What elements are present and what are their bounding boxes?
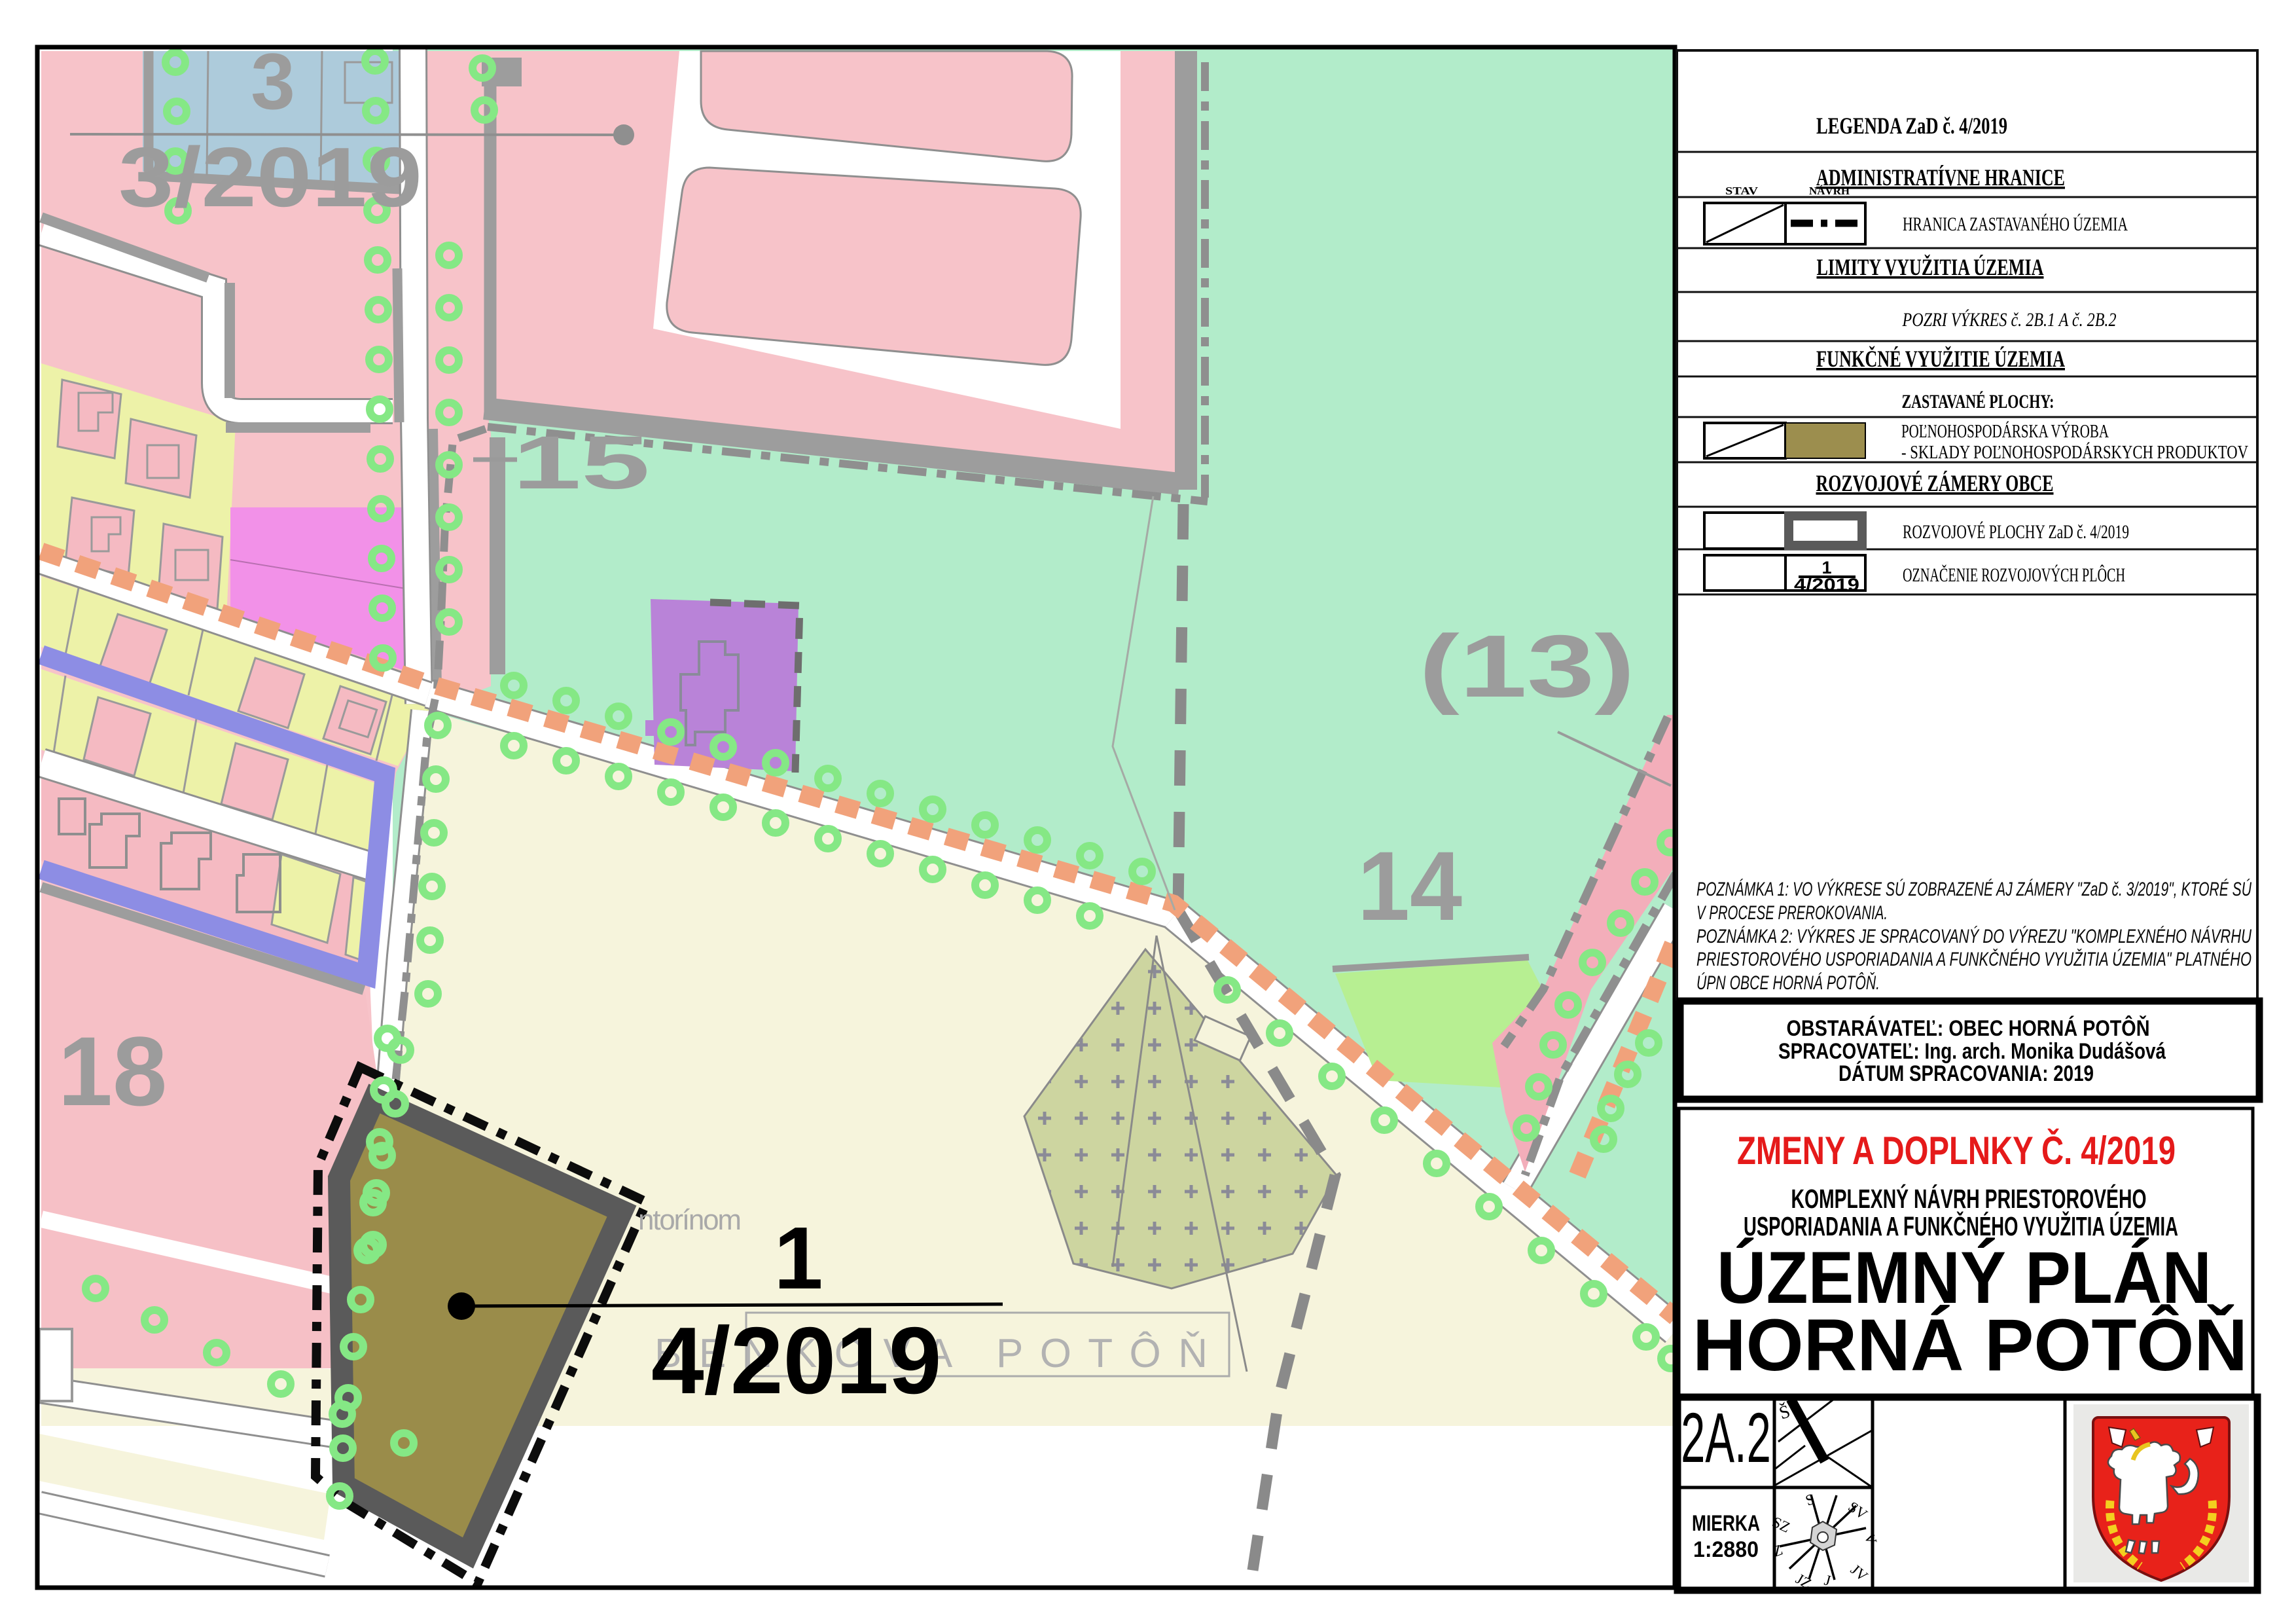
svg-text:14: 14 <box>1357 831 1462 941</box>
svg-text:STAV: STAV <box>1725 185 1759 197</box>
svg-text:NÁVRH: NÁVRH <box>1809 185 1850 197</box>
svg-text:ÚPN OBCE HORNÁ POTÔŇ.: ÚPN OBCE HORNÁ POTÔŇ. <box>1696 972 1880 994</box>
svg-text:OBSTARÁVATEĽ: OBEC HORNÁ POT: OBSTARÁVATEĽ: OBEC HORNÁ POTÔŇ <box>1787 1015 2150 1041</box>
svg-text:SPRACOVATEĽ: Ing. arch. Monika: SPRACOVATEĽ: Ing. arch. Monika Dudášová <box>1778 1039 2166 1064</box>
svg-text:ZASTAVANÉ PLOCHY:: ZASTAVANÉ PLOCHY: <box>1902 391 2054 412</box>
svg-text:FUNKČNÉ VYUŽITIE ÚZEMIA: FUNKČNÉ VYUŽITIE ÚZEMIA <box>1816 346 2065 372</box>
svg-text:KOMPLEXNÝ NÁVRH PRIESTOROVÉH: KOMPLEXNÝ NÁVRH PRIESTOROVÉHO <box>1791 1184 2147 1214</box>
svg-text:OZNAČENIE ROZVOJOVÝCH PLÔCH: OZNAČENIE ROZVOJOVÝCH PLÔCH <box>1903 564 2125 586</box>
svg-text:ROZVOJOVÉ PLOCHY ZaD č. 4/2019: ROZVOJOVÉ PLOCHY ZaD č. 4/2019 <box>1903 521 2129 543</box>
svg-text:ntorínom: ntorínom <box>638 1204 742 1236</box>
svg-text:DÁTUM SPRACOVANIA: 2019: DÁTUM SPRACOVANIA: 2019 <box>1839 1061 2094 1086</box>
svg-text:15: 15 <box>512 421 650 505</box>
svg-text:HORNÁ POTÔŇ: HORNÁ POTÔŇ <box>1693 1304 2248 1386</box>
svg-text:2A.2: 2A.2 <box>1681 1399 1771 1478</box>
svg-text:POZRI VÝKRES č. 2B.1 A č. 2B.2: POZRI VÝKRES č. 2B.1 A č. 2B.2 <box>1902 309 2117 331</box>
svg-text:ROZVOJOVÉ ZÁMERY OBCE: ROZVOJOVÉ ZÁMERY OBCE <box>1816 470 2054 496</box>
svg-text:LEGENDA ZaD č. 4/2019: LEGENDA ZaD č. 4/2019 <box>1816 113 2007 139</box>
svg-text:18: 18 <box>58 1016 168 1126</box>
svg-text:PRIESTOROVÉHO USPORIADANIA A F: PRIESTOROVÉHO USPORIADANIA A FUNKČNÉHO V… <box>1696 948 2251 970</box>
svg-text:POĽNOHOSPODÁRSKA VÝROBA: POĽNOHOSPODÁRSKA VÝROBA <box>1901 420 2109 442</box>
svg-text:4/2019: 4/2019 <box>651 1307 942 1413</box>
svg-text:1:2880: 1:2880 <box>1693 1537 1759 1562</box>
svg-text:LIMITY VYUŽITIA ÚZEMIA: LIMITY VYUŽITIA ÚZEMIA <box>1817 254 2044 280</box>
svg-text:1: 1 <box>774 1209 823 1307</box>
svg-text:V PROCESE PREROKOVANIA.: V PROCESE PREROKOVANIA. <box>1696 902 1888 924</box>
svg-text:MIERKA: MIERKA <box>1692 1511 1760 1536</box>
svg-text:- SKLADY POĽNOHOSPODÁRSKYCH PR: - SKLADY POĽNOHOSPODÁRSKYCH PRODUKTOV <box>1901 441 2248 463</box>
svg-text:POZNÁMKA 1: VO VÝKRESE SÚ ZOBR: POZNÁMKA 1: VO VÝKRESE SÚ ZOBRAZENÉ AJ Z… <box>1696 879 2251 900</box>
svg-text:HRANICA ZASTAVANÉHO ÚZEMIA: HRANICA ZASTAVANÉHO ÚZEMIA <box>1903 213 2128 235</box>
svg-text:3/2019: 3/2019 <box>118 130 422 225</box>
svg-text:ZMENY A DOPLNKY Č. 4/2019: ZMENY A DOPLNKY Č. 4/2019 <box>1737 1129 2176 1173</box>
svg-text:ADMINISTRATÍVNE HRANICE: ADMINISTRATÍVNE HRANICE <box>1816 164 2065 191</box>
svg-text:(13): (13) <box>1419 617 1635 716</box>
svg-text:POZNÁMKA 2: VÝKRES JE SPRACOV: POZNÁMKA 2: VÝKRES JE SPRACOVANÝ DO VÝRE… <box>1696 926 2251 947</box>
svg-text:3: 3 <box>251 37 295 126</box>
